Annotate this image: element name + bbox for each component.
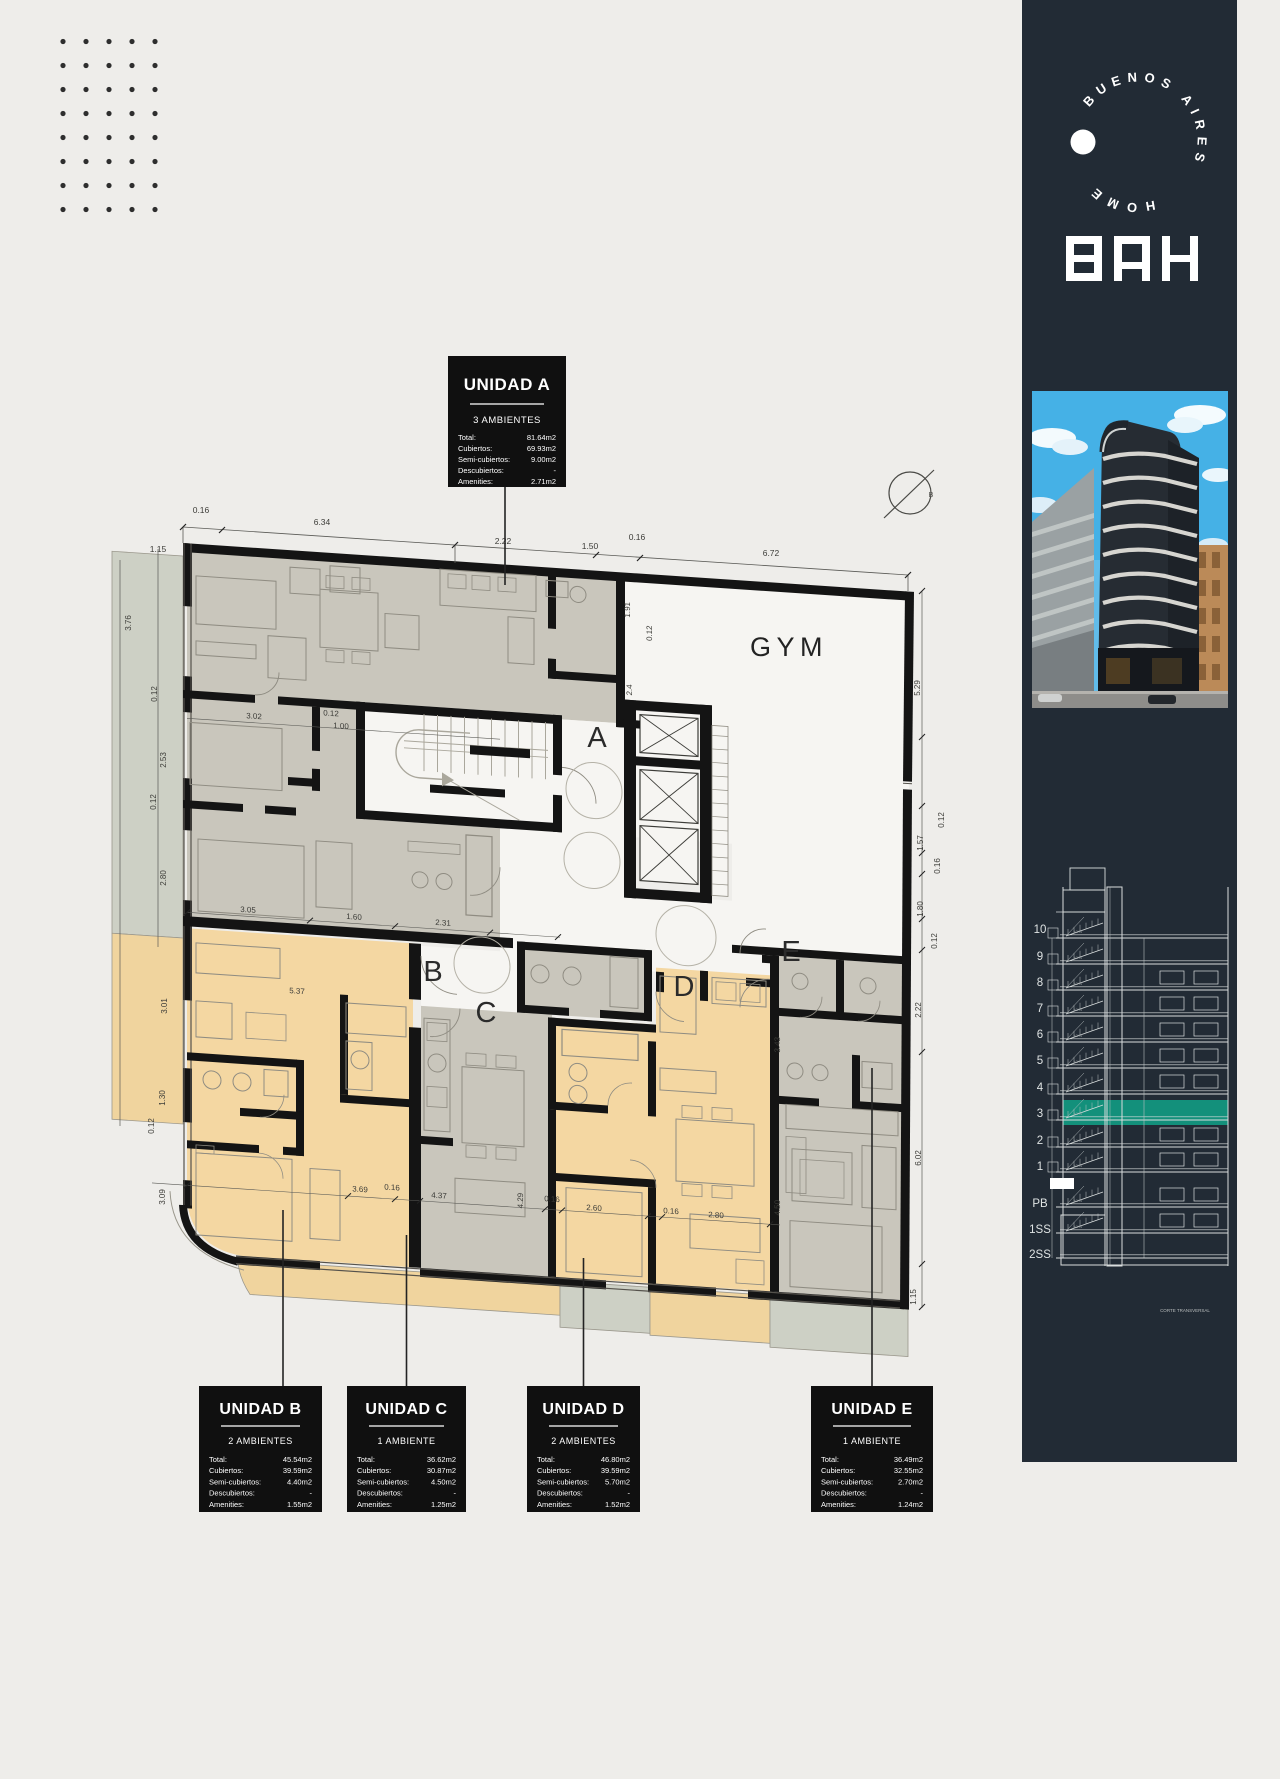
svg-text:Amenities:: Amenities:: [537, 1500, 572, 1509]
svg-text:2.31: 2.31: [435, 918, 451, 928]
svg-text:Cubiertos:: Cubiertos:: [209, 1466, 243, 1475]
svg-text:Total:: Total:: [458, 433, 476, 442]
svg-text:39.59m2: 39.59m2: [283, 1466, 312, 1475]
svg-text:39.59m2: 39.59m2: [601, 1466, 630, 1475]
svg-text:10: 10: [1034, 924, 1047, 936]
svg-text:36.49m2: 36.49m2: [894, 1455, 923, 1464]
svg-text:1.80: 1.80: [916, 901, 925, 917]
svg-text:3: 3: [1037, 1108, 1043, 1120]
svg-text:3 AMBIENTES: 3 AMBIENTES: [473, 415, 541, 426]
svg-text:A: A: [587, 722, 607, 754]
svg-text:2SS: 2SS: [1029, 1249, 1051, 1261]
svg-text:2 AMBIENTES: 2 AMBIENTES: [228, 1436, 293, 1446]
svg-text:36.62m2: 36.62m2: [427, 1455, 456, 1464]
svg-text:3.02: 3.02: [246, 711, 262, 721]
svg-text:+2.74: +2.74: [1074, 1112, 1082, 1116]
svg-text:+2.74: +2.74: [1074, 982, 1082, 986]
svg-text:0.12: 0.12: [323, 708, 339, 718]
svg-text:Amenities:: Amenities:: [357, 1500, 392, 1509]
svg-text:Descubiertos:: Descubiertos:: [821, 1489, 867, 1498]
svg-text:3.69: 3.69: [352, 1184, 368, 1194]
svg-text:0.16: 0.16: [544, 1194, 560, 1204]
svg-text:1.57: 1.57: [916, 835, 925, 851]
svg-text:1.50: 1.50: [582, 541, 599, 551]
svg-text:0.16: 0.16: [629, 532, 646, 542]
svg-text:B: B: [423, 956, 442, 988]
svg-text:8: 8: [1037, 977, 1043, 989]
svg-text:1: 1: [1037, 1161, 1043, 1173]
svg-text:PB: PB: [1032, 1198, 1048, 1210]
svg-text:5.37: 5.37: [289, 986, 305, 996]
svg-text:Cubiertos:: Cubiertos:: [357, 1466, 391, 1475]
svg-text:+2.74: +2.74: [1074, 1225, 1082, 1229]
svg-text:GYM: GYM: [750, 632, 828, 662]
svg-text:6: 6: [1037, 1029, 1043, 1041]
svg-text:0.12: 0.12: [149, 794, 158, 810]
svg-text:+2.74: +2.74: [1074, 956, 1082, 960]
svg-text:UNIDAD D: UNIDAD D: [542, 1401, 624, 1418]
svg-text:1SS: 1SS: [1029, 1224, 1051, 1236]
svg-text:Semi-cubiertos:: Semi-cubiertos:: [821, 1477, 873, 1486]
svg-text:+2.74: +2.74: [1074, 1060, 1082, 1064]
svg-text:+2.74: +2.74: [1074, 1164, 1082, 1168]
svg-text:+2.74: +2.74: [1074, 1034, 1082, 1038]
svg-text:30.87m2: 30.87m2: [427, 1466, 456, 1475]
svg-text:1.15: 1.15: [909, 1289, 918, 1305]
svg-text:Descubiertos:: Descubiertos:: [537, 1489, 583, 1498]
svg-text:Semi-cubiertos:: Semi-cubiertos:: [458, 455, 510, 464]
svg-text:2.22: 2.22: [914, 1002, 923, 1018]
svg-text:1 AMBIENTE: 1 AMBIENTE: [843, 1436, 901, 1446]
svg-text:4.50: 4.50: [773, 1199, 782, 1216]
svg-text:Descubiertos:: Descubiertos:: [458, 466, 504, 475]
svg-text:46.80m2: 46.80m2: [601, 1455, 630, 1464]
svg-text:1.60: 1.60: [346, 912, 362, 922]
svg-text:UNIDAD B: UNIDAD B: [219, 1401, 301, 1418]
svg-text:1.52m2: 1.52m2: [605, 1500, 630, 1509]
svg-text:Total:: Total:: [537, 1455, 555, 1464]
svg-text:Total:: Total:: [821, 1455, 839, 1464]
svg-text:+2.74: +2.74: [1074, 1008, 1082, 1012]
svg-text:Cubiertos:: Cubiertos:: [537, 1466, 571, 1475]
svg-text:4.29: 4.29: [516, 1192, 525, 1209]
svg-text:+2.74: +2.74: [1074, 1199, 1082, 1203]
svg-text:0.12: 0.12: [645, 625, 654, 642]
svg-text:6.34: 6.34: [314, 517, 331, 527]
svg-text:0.12: 0.12: [147, 1118, 156, 1134]
svg-text:1.30: 1.30: [158, 1090, 167, 1106]
svg-text:3.05: 3.05: [240, 905, 256, 915]
svg-text:C: C: [476, 997, 497, 1029]
svg-text:B: B: [929, 492, 934, 499]
svg-text:1.55m2: 1.55m2: [287, 1500, 312, 1509]
svg-text:5.29: 5.29: [913, 680, 922, 696]
svg-text:E: E: [781, 936, 800, 968]
svg-text:3.01: 3.01: [160, 998, 169, 1014]
svg-text:0.16: 0.16: [384, 1182, 400, 1192]
svg-text:Semi-cubiertos:: Semi-cubiertos:: [209, 1477, 261, 1486]
svg-text:UNIDAD C: UNIDAD C: [365, 1401, 447, 1418]
svg-text:Amenities:: Amenities:: [209, 1500, 244, 1509]
svg-text:4.50m2: 4.50m2: [431, 1477, 456, 1486]
svg-text:9: 9: [1037, 951, 1043, 963]
svg-text:Cubiertos:: Cubiertos:: [458, 444, 492, 453]
svg-text:9.00m2: 9.00m2: [531, 455, 556, 464]
svg-text:1.25m2: 1.25m2: [431, 1500, 456, 1509]
svg-text:32.55m2: 32.55m2: [894, 1466, 923, 1475]
svg-text:3.43: 3.43: [773, 1036, 782, 1053]
svg-text:1.24m2: 1.24m2: [898, 1500, 923, 1509]
svg-text:2.80: 2.80: [708, 1210, 724, 1220]
svg-text:0.16: 0.16: [663, 1206, 679, 1216]
svg-text:Semi-cubiertos:: Semi-cubiertos:: [537, 1477, 589, 1486]
svg-text:5: 5: [1037, 1055, 1043, 1067]
svg-text:4: 4: [1037, 1082, 1044, 1094]
svg-text:UNIDAD A: UNIDAD A: [464, 375, 550, 394]
svg-text:4.40m2: 4.40m2: [287, 1477, 312, 1486]
svg-text:0.16: 0.16: [193, 505, 210, 515]
svg-text:CORTE TRANSVERSAL: CORTE TRANSVERSAL: [1160, 1308, 1210, 1313]
svg-text:2: 2: [1037, 1135, 1043, 1147]
svg-text:Total:: Total:: [209, 1455, 227, 1464]
svg-text:5.70m2: 5.70m2: [605, 1477, 630, 1486]
svg-text:2 AMBIENTES: 2 AMBIENTES: [551, 1436, 616, 1446]
svg-text:1.91: 1.91: [623, 601, 632, 618]
svg-text:Descubiertos:: Descubiertos:: [357, 1489, 403, 1498]
svg-text:6.72: 6.72: [763, 548, 780, 558]
svg-text:3.76: 3.76: [124, 615, 133, 631]
svg-text:0.12: 0.12: [930, 933, 939, 949]
svg-text:+2.74: +2.74: [1074, 1139, 1082, 1143]
svg-text:45.54m2: 45.54m2: [283, 1455, 312, 1464]
svg-text:3.09: 3.09: [158, 1189, 167, 1205]
svg-text:7: 7: [1037, 1003, 1043, 1015]
svg-text:UNIDAD E: UNIDAD E: [831, 1401, 912, 1418]
svg-text:Cubiertos:: Cubiertos:: [821, 1466, 855, 1475]
svg-text:2.22: 2.22: [495, 536, 512, 546]
svg-text:69.93m2: 69.93m2: [527, 444, 556, 453]
svg-text:6.02: 6.02: [914, 1150, 923, 1166]
svg-text:4.37: 4.37: [431, 1191, 447, 1201]
svg-text:Semi-cubiertos:: Semi-cubiertos:: [357, 1477, 409, 1486]
svg-text:2.71m2: 2.71m2: [531, 477, 556, 486]
svg-text:Descubiertos:: Descubiertos:: [209, 1489, 255, 1498]
svg-text:2.4: 2.4: [625, 683, 634, 695]
svg-text:0.12: 0.12: [937, 812, 946, 828]
svg-text:D: D: [674, 971, 695, 1003]
svg-text:81.64m2: 81.64m2: [527, 433, 556, 442]
svg-text:+2.74: +2.74: [1074, 930, 1082, 934]
svg-text:+2.74: +2.74: [1074, 1086, 1082, 1090]
svg-text:Amenities:: Amenities:: [821, 1500, 856, 1509]
svg-text:0.12: 0.12: [150, 686, 159, 702]
svg-text:2.70m2: 2.70m2: [898, 1477, 923, 1486]
svg-text:2.53: 2.53: [159, 752, 168, 768]
svg-text:0.16: 0.16: [933, 858, 942, 874]
svg-text:1 AMBIENTE: 1 AMBIENTE: [377, 1436, 435, 1446]
svg-text:2.80: 2.80: [159, 870, 168, 886]
svg-text:Amenities:: Amenities:: [458, 477, 493, 486]
svg-text:2.60: 2.60: [586, 1203, 602, 1213]
svg-text:Total:: Total:: [357, 1455, 375, 1464]
svg-text:1.00: 1.00: [333, 721, 349, 731]
